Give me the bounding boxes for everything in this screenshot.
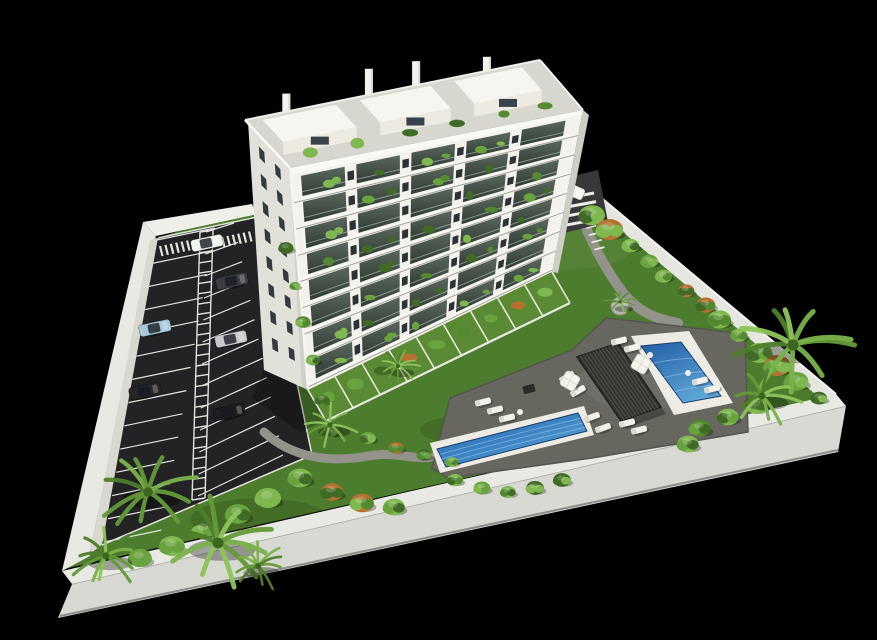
- balcony-plant: [514, 275, 524, 282]
- chimney: [365, 69, 373, 95]
- window: [402, 158, 409, 168]
- balcony-plant: [517, 217, 525, 223]
- side-table: [647, 352, 653, 358]
- balcony-plant: [524, 193, 536, 202]
- palm-crown: [327, 422, 332, 427]
- roof-terrace-plant: [303, 147, 318, 157]
- terrace-hedge: [484, 314, 497, 322]
- balcony-plant: [483, 290, 490, 294]
- balcony-plant: [441, 153, 450, 157]
- balcony-plant: [466, 254, 477, 263]
- palm-crown: [787, 339, 798, 350]
- palm-crown: [255, 563, 261, 569]
- window: [457, 146, 464, 156]
- side-table: [685, 370, 691, 376]
- window: [511, 135, 519, 144]
- roof-terrace-plant: [538, 102, 553, 109]
- chimney: [282, 94, 290, 112]
- balcony-plant: [374, 170, 384, 175]
- penthouse-window: [311, 137, 329, 145]
- chimney: [412, 61, 420, 85]
- balcony-plant: [423, 226, 436, 234]
- palm-crown: [396, 364, 400, 368]
- palm-crown: [619, 301, 622, 304]
- palm-frond: [330, 403, 331, 425]
- terrace-hedge: [511, 301, 525, 309]
- window: [349, 220, 356, 231]
- palm-crown: [102, 552, 109, 559]
- balcony-plant: [323, 257, 334, 266]
- window: [402, 252, 408, 263]
- balcony-plant: [485, 164, 493, 173]
- balcony-plant: [463, 235, 471, 243]
- balcony-plant: [364, 295, 375, 301]
- balcony-plant: [532, 172, 541, 180]
- palm-crown: [213, 538, 224, 549]
- balcony-plant: [335, 358, 348, 363]
- balcony-plant: [387, 333, 397, 337]
- balcony-plant: [522, 234, 532, 240]
- penthouse-window: [406, 117, 424, 125]
- balcony-plant: [496, 141, 505, 145]
- balcony-plant: [485, 207, 498, 213]
- window: [509, 155, 517, 165]
- window: [352, 294, 359, 306]
- penthouse-window: [499, 99, 517, 107]
- side-table: [517, 409, 523, 415]
- terrace-hedge: [428, 340, 446, 350]
- balcony-plant: [440, 175, 450, 182]
- palm-crown: [143, 487, 153, 497]
- terrace-hedge: [457, 327, 470, 337]
- balcony-plant: [412, 299, 420, 307]
- balcony-plant: [340, 328, 347, 335]
- palm-crown: [758, 392, 765, 399]
- balcony-plant: [362, 195, 375, 203]
- balcony-plant: [422, 158, 433, 166]
- terrace-hedge: [347, 378, 364, 390]
- window: [350, 244, 357, 255]
- window: [402, 205, 409, 216]
- balcony-plant: [421, 273, 433, 278]
- roof-terrace-plant: [449, 120, 465, 127]
- window: [402, 228, 409, 239]
- roof-terrace-plant: [498, 110, 509, 117]
- balcony-plant: [388, 236, 395, 242]
- balcony-plant: [543, 188, 550, 194]
- terrace-hedge: [537, 288, 552, 297]
- palm-frond: [791, 345, 793, 392]
- balcony-plant: [437, 288, 443, 294]
- window: [351, 269, 358, 281]
- balcony-plant: [362, 245, 374, 253]
- window: [347, 170, 354, 181]
- balcony-plant: [459, 301, 468, 307]
- balcony-plant: [363, 320, 374, 326]
- window: [454, 191, 461, 201]
- balcony-plant: [332, 177, 341, 184]
- window: [348, 195, 355, 206]
- balcony-plant: [487, 246, 493, 252]
- render-viewport: [0, 0, 877, 640]
- balcony-plant: [528, 268, 538, 272]
- roof-terrace-plant: [350, 138, 364, 149]
- roof-terrace-plant: [402, 129, 418, 136]
- chimney: [483, 57, 491, 71]
- balcony-plant: [536, 228, 542, 233]
- site-plan-render: [0, 0, 877, 640]
- balcony-plant: [334, 227, 343, 234]
- balcony-plant: [466, 191, 473, 200]
- balcony-plant: [412, 322, 419, 330]
- balcony-plant: [475, 146, 487, 154]
- balcony-plant: [388, 260, 394, 266]
- window: [456, 168, 463, 178]
- window: [402, 182, 409, 193]
- balcony-plant: [386, 188, 396, 195]
